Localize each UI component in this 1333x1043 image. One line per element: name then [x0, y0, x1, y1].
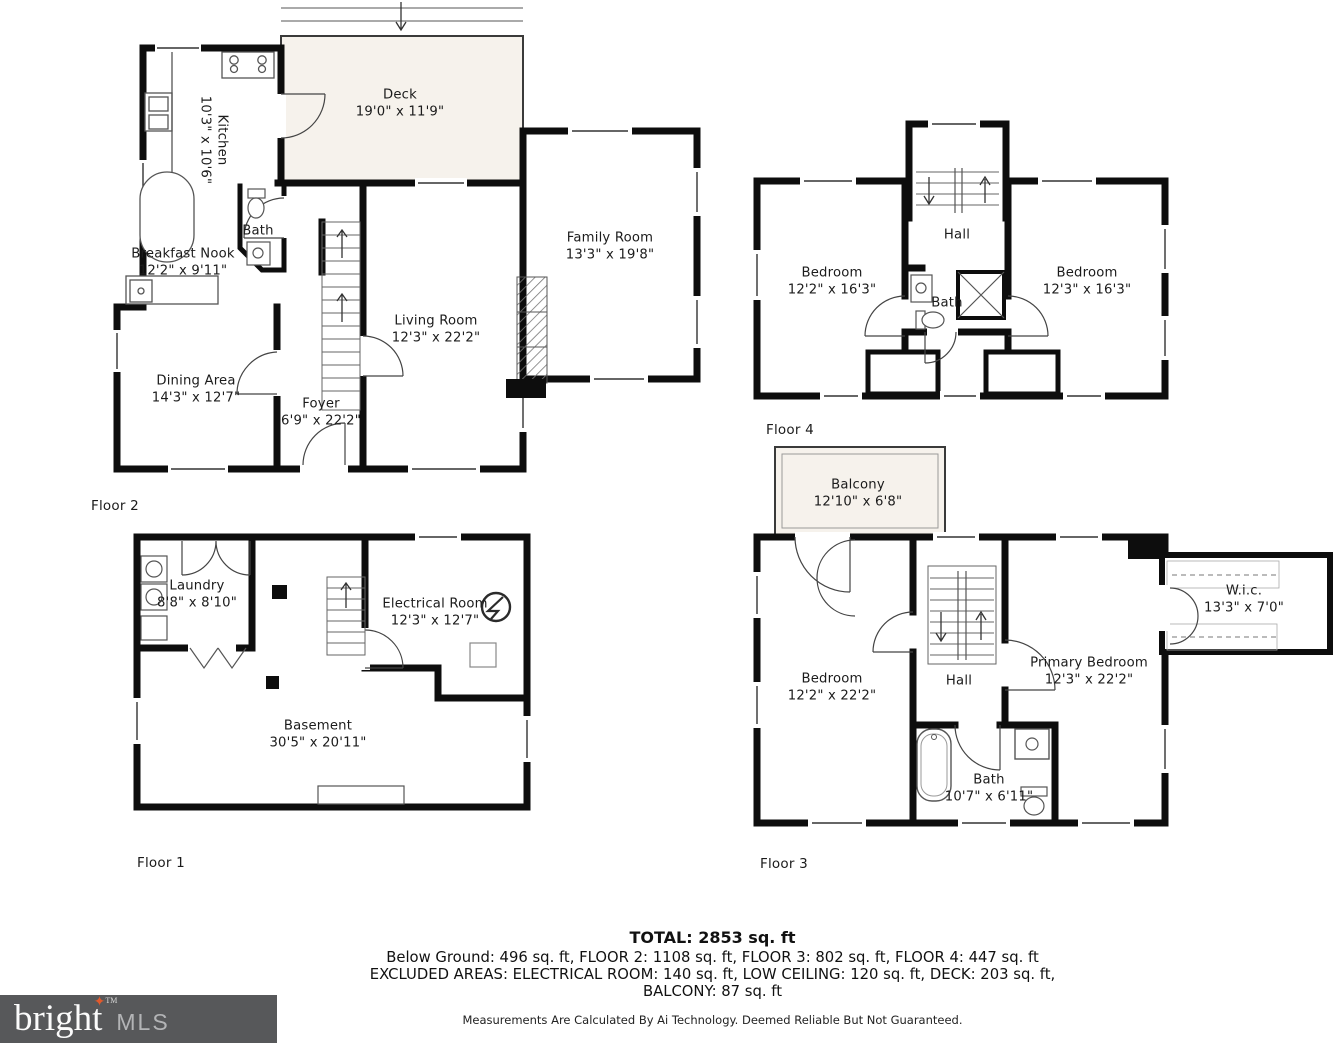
- room-label-dining-area: Dining Area 14'3" x 12'7": [152, 373, 241, 408]
- room-label-deck: Deck 19'0" x 11'9": [356, 87, 445, 122]
- floor2-caption: Floor 2: [91, 498, 139, 514]
- disclaimer-text: Measurements Are Calculated By Ai Techno…: [92, 1013, 1333, 1027]
- support-post: [272, 585, 287, 599]
- toilet: [248, 198, 264, 218]
- staircase: [327, 577, 365, 655]
- wall-block: [506, 379, 546, 398]
- floor4-walls: [757, 124, 1165, 396]
- logo-brand-text: bright ✦ TM: [14, 995, 102, 1043]
- staircase: [322, 222, 360, 410]
- room-label-bedroom-floor3: Bedroom 12'2" x 22'2": [788, 671, 877, 706]
- room-label-bedroom-left-floor4: Bedroom 12'2" x 16'3": [788, 265, 877, 300]
- low-ceiling-hatch: [517, 277, 547, 383]
- arrow-icons: [924, 177, 990, 204]
- room-label-hall-floor3: Hall: [946, 672, 972, 689]
- room-label-wic: W.i.c. 13'3" x 7'0": [1204, 583, 1284, 618]
- floor3-caption: Floor 3: [760, 856, 808, 872]
- wall-openings: [752, 119, 1170, 401]
- toilet: [922, 312, 944, 328]
- floor4-caption: Floor 4: [766, 422, 814, 438]
- room-label-breakfast-nook: Breakfast Nook 12'2" x 9'11": [131, 246, 234, 281]
- room-label-bedroom-right-floor4: Bedroom 12'3" x 16'3": [1043, 265, 1132, 300]
- room-label-family-room: Family Room 13'3" x 19'8": [566, 230, 655, 265]
- closet-right: [986, 352, 1058, 394]
- arrow-up-icon: [337, 230, 347, 322]
- room-label-electrical-room: Electrical Room 12'3" x 12'7": [382, 596, 487, 631]
- deck-steps: [281, 8, 523, 21]
- room-label-basement: Basement 30'5" x 20'11": [269, 718, 366, 753]
- windows: [757, 124, 1165, 396]
- room-label-foyer: Foyer 6'9" x 22'2": [281, 396, 361, 431]
- arrow-icons: [936, 612, 986, 641]
- staircase: [916, 168, 999, 213]
- stove: [222, 52, 274, 78]
- room-label-hall-floor4: Hall: [944, 226, 970, 243]
- trademark-symbol: TM: [105, 997, 117, 1005]
- arrow-up-icon: [341, 583, 351, 608]
- stair-rail: [958, 571, 966, 660]
- utility-cabinet: [141, 616, 167, 640]
- closet-left: [868, 352, 938, 394]
- room-label-primary-bedroom: Primary Bedroom 12'3" x 22'2": [1030, 655, 1148, 690]
- room-label-bath-floor2: Bath: [242, 222, 273, 239]
- toilet-tank: [248, 189, 265, 198]
- floor-areas-text: Below Ground: 496 sq. ft, FLOOR 2: 1108 …: [92, 949, 1333, 966]
- room-label-balcony: Balcony 12'10" x 6'8": [814, 477, 903, 512]
- floor1-caption: Floor 1: [137, 855, 185, 871]
- star-icon: ✦: [94, 996, 106, 1010]
- room-label-bath-floor3: Bath 10'7" x 6'11": [945, 772, 1034, 807]
- equipment-box: [470, 643, 496, 667]
- room-label-laundry: Laundry 8'8" x 8'10": [157, 578, 237, 613]
- excluded-areas-text: EXCLUDED AREAS: ELECTRICAL ROOM: 140 sq.…: [92, 966, 1333, 983]
- floorplan-page: Kitchen 10'3" x 10'6" Deck 19'0" x 11'9"…: [0, 0, 1333, 1043]
- arrow-down-icon: [396, 2, 406, 30]
- hearth: [318, 786, 404, 804]
- bright-mls-logo: bright ✦ TM MLS: [0, 995, 277, 1043]
- staircase: [928, 566, 996, 664]
- room-label-kitchen: Kitchen 10'3" x 10'6": [196, 96, 231, 185]
- stair-rail: [955, 168, 962, 213]
- floor4-plan: [752, 119, 1170, 401]
- logo-wordmark: bright: [14, 998, 102, 1039]
- logo-mls-text: MLS: [116, 1009, 169, 1036]
- total-area-text: TOTAL: 2853 sq. ft: [92, 928, 1333, 947]
- support-post: [266, 676, 279, 689]
- room-label-bath-floor4: Bath: [931, 294, 962, 311]
- floor1-plan: [132, 532, 532, 807]
- excluded-areas-text-2: BALCONY: 87 sq. ft: [92, 983, 1333, 1000]
- room-label-living-room: Living Room 12'3" x 22'2": [392, 313, 481, 348]
